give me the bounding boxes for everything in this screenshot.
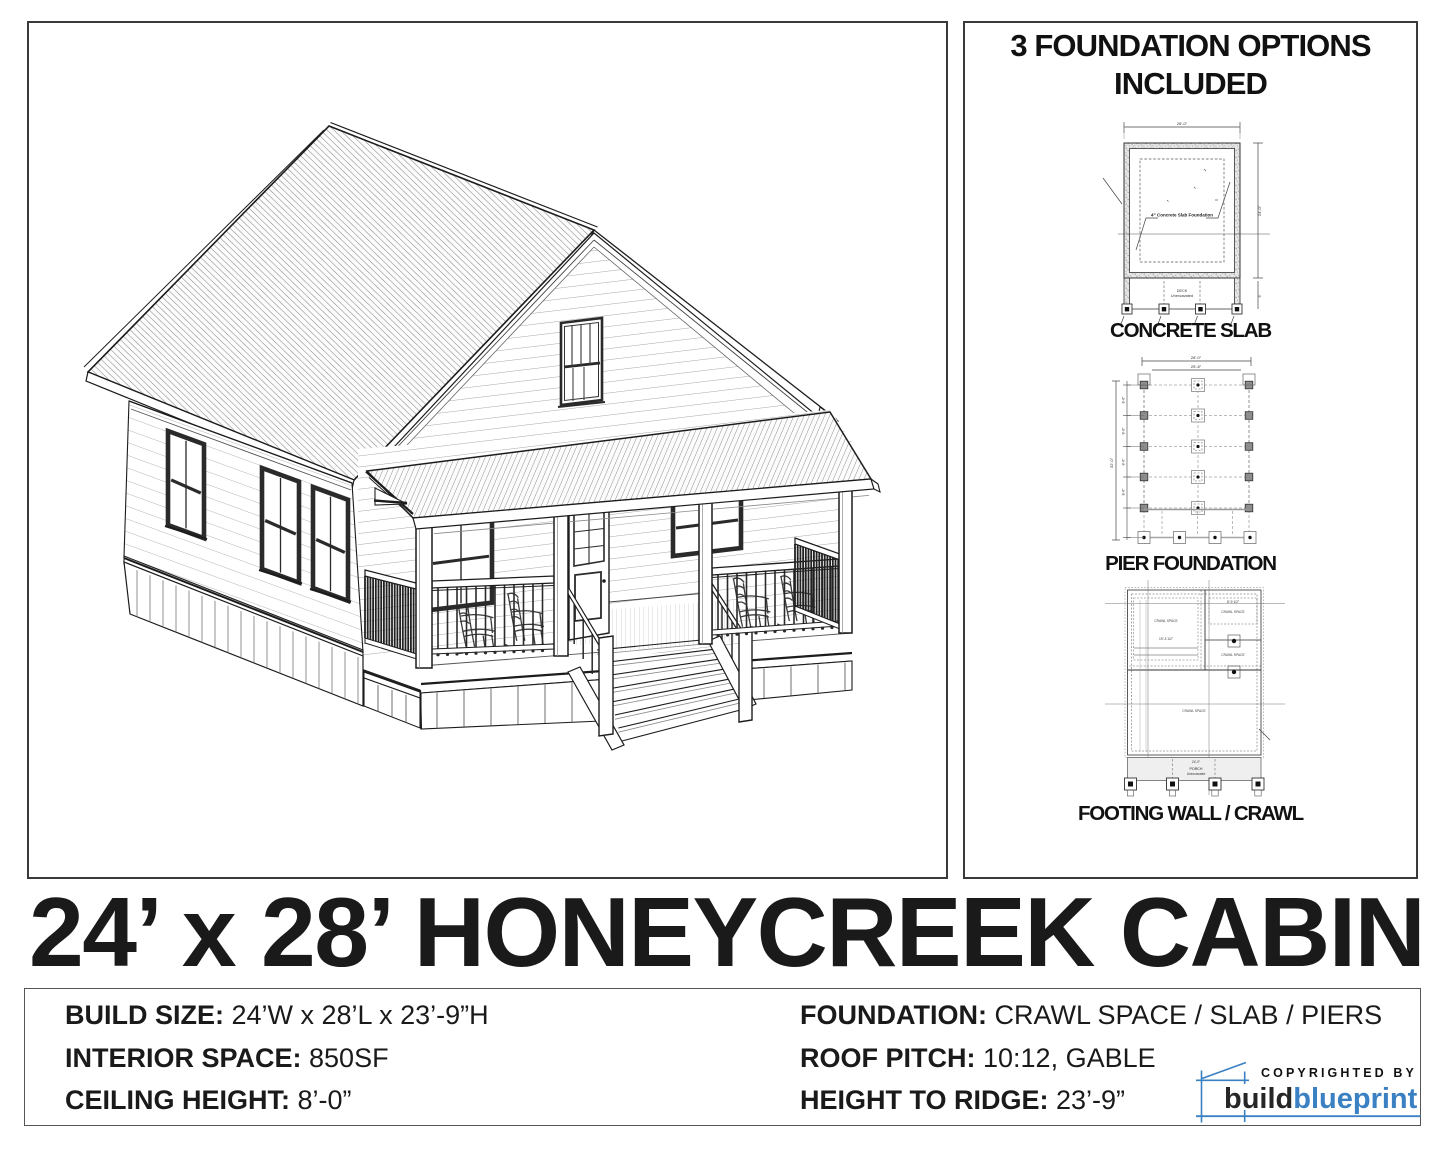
svg-text:24’-0”: 24’-0”: [1192, 760, 1200, 764]
svg-text:DECK: DECK: [1177, 289, 1188, 293]
svg-text:PORCH: PORCH: [1190, 767, 1203, 771]
svg-text:Unexcavated: Unexcavated: [1187, 772, 1206, 776]
svg-text:8’-6”: 8’-6”: [1122, 459, 1126, 466]
svg-text:4” Concrete Slab Foundation: 4” Concrete Slab Foundation: [1151, 213, 1213, 218]
svg-text:28’-0”: 28’-0”: [1191, 355, 1202, 360]
svg-text:28’-0”: 28’-0”: [1177, 121, 1188, 126]
svg-text:25’-8”: 25’-8”: [1191, 364, 1202, 369]
svg-text:8’-9 1/2”: 8’-9 1/2”: [1227, 600, 1239, 604]
svg-text:8’-6”: 8’-6”: [1122, 489, 1126, 496]
svg-text:32’-0”: 32’-0”: [1109, 457, 1114, 468]
svg-text:8’-6”: 8’-6”: [1122, 397, 1126, 404]
svg-text:CRAWL SPACE: CRAWL SPACE: [1182, 709, 1206, 713]
svg-text:CRAWL SPACE: CRAWL SPACE: [1154, 619, 1178, 623]
svg-text:24’-0”: 24’-0”: [1257, 205, 1262, 216]
svg-text:19’-3 1/2”: 19’-3 1/2”: [1159, 637, 1173, 641]
svg-text:CRAWL SPACE: CRAWL SPACE: [1221, 653, 1245, 657]
svg-text:CRAWL SPACE: CRAWL SPACE: [1221, 610, 1245, 614]
svg-text:6’: 6’: [1258, 294, 1262, 297]
svg-text:8’-6”: 8’-6”: [1122, 428, 1126, 435]
svg-text:Unexcavated: Unexcavated: [1171, 294, 1193, 298]
